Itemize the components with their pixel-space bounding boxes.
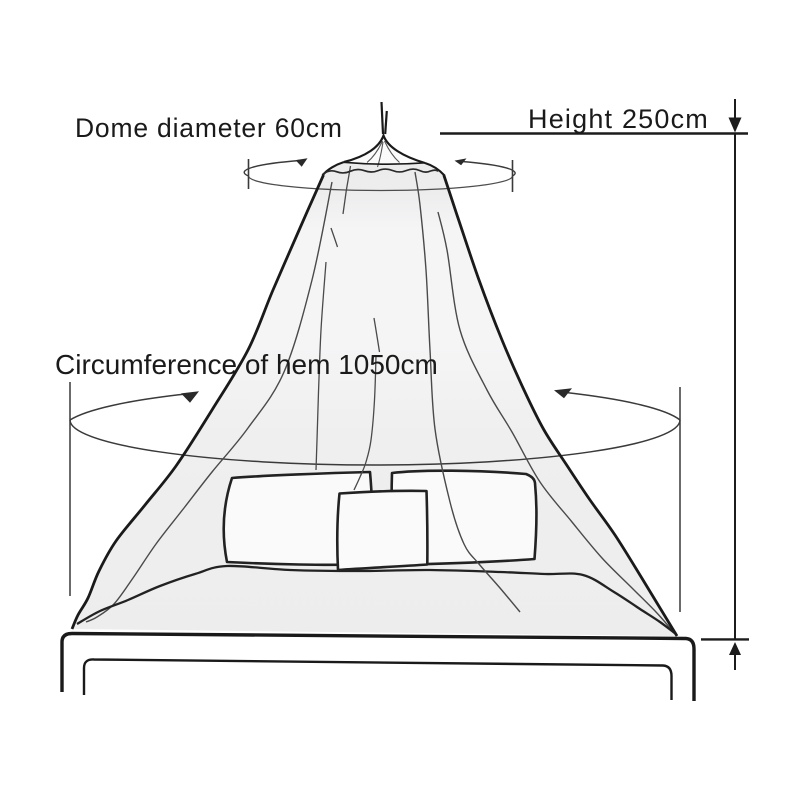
svg-text:Circumference of hem 1050cm: Circumference of hem 1050cm [55, 349, 438, 380]
svg-text:Height 250cm: Height 250cm [528, 104, 709, 134]
svg-text:Dome diameter 60cm: Dome diameter 60cm [75, 113, 343, 143]
